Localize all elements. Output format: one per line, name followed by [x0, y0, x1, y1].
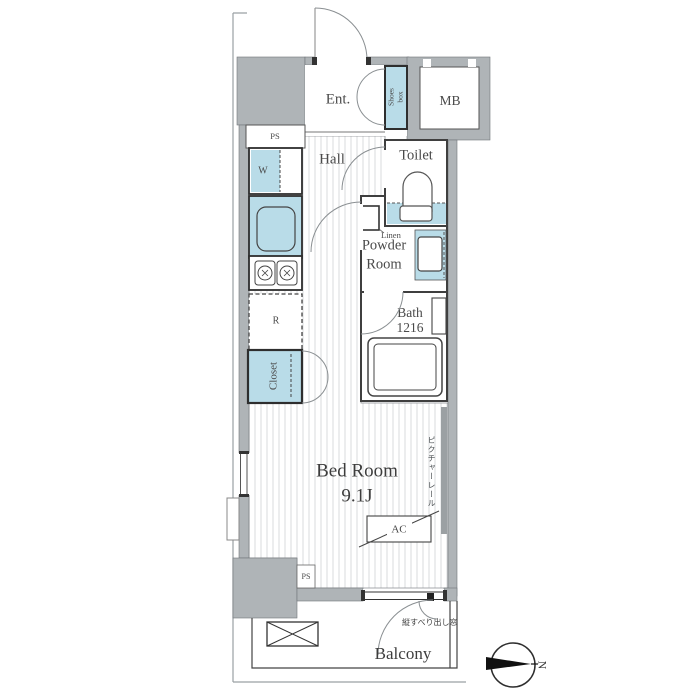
bath-room: Bath 1216 — [361, 292, 447, 401]
label-ps-top: PS — [270, 131, 280, 141]
toilet-room: Toilet — [385, 140, 447, 226]
compass: N — [486, 643, 549, 687]
exterior-pillar — [227, 498, 239, 540]
label-shoes-1: Shoes — [387, 88, 396, 106]
mb-notch-left — [423, 59, 431, 67]
stove — [249, 256, 302, 290]
pipe-space-top: PS — [246, 125, 305, 148]
room-label-bath-2: 1216 — [397, 320, 424, 335]
label-linen: Linen — [381, 230, 402, 240]
label-ps-bottom: PS — [302, 572, 311, 581]
wall-bottom-left-block — [233, 558, 297, 618]
refrigerator-space: R — [249, 294, 302, 350]
kitchen-counter — [249, 196, 302, 258]
bathtub-inner — [374, 344, 436, 390]
floor-plan-drawing: MB Powder Room Toilet Linen Bath 1216 — [0, 0, 700, 700]
label-refrigerator: R — [273, 315, 280, 326]
room-label-mb: MB — [439, 93, 460, 108]
room-label-powder-2: Room — [366, 256, 402, 272]
wall-entry-right — [367, 57, 409, 65]
room-label-ent: Ent. — [326, 91, 351, 107]
label-picture-rail: ピクチャーレール — [425, 436, 437, 508]
pipe-space-bottom: PS — [297, 565, 315, 588]
label-ac: AC — [391, 524, 406, 536]
washer-box: W — [249, 148, 302, 194]
room-label-bedroom-2: 9.1J — [341, 485, 372, 506]
kitchen-sink — [257, 207, 295, 251]
washing-machine-space — [415, 230, 446, 280]
picture-rail — [441, 407, 447, 534]
wall-left-lower — [239, 495, 249, 558]
toilet-tank — [400, 206, 432, 221]
entrance-door — [312, 8, 371, 65]
compass-north-label: N — [535, 661, 549, 670]
wall-right — [448, 140, 457, 596]
ac-unit: AC — [359, 511, 439, 547]
wall-bottom-solid — [297, 588, 363, 601]
mb-notch-right — [468, 59, 476, 67]
floor-plan: MB Powder Room Toilet Linen Bath 1216 — [0, 0, 700, 700]
room-label-bath-1: Bath — [397, 305, 423, 320]
room-label-bedroom-1: Bed Room — [316, 460, 398, 481]
casement-window-swing — [419, 601, 437, 619]
label-washer: W — [258, 165, 268, 176]
room-label-toilet: Toilet — [399, 147, 433, 163]
label-shoes-2: box — [396, 91, 405, 103]
bath-counter — [432, 298, 446, 334]
meter-box: MB — [420, 59, 479, 129]
wall-top-left-block — [237, 57, 305, 125]
room-label-closet: Closet — [268, 362, 280, 390]
label-casement-window: 縦すべり出し窓 — [402, 617, 457, 627]
room-label-hall: Hall — [319, 151, 345, 167]
room-label-balcony: Balcony — [375, 644, 432, 663]
